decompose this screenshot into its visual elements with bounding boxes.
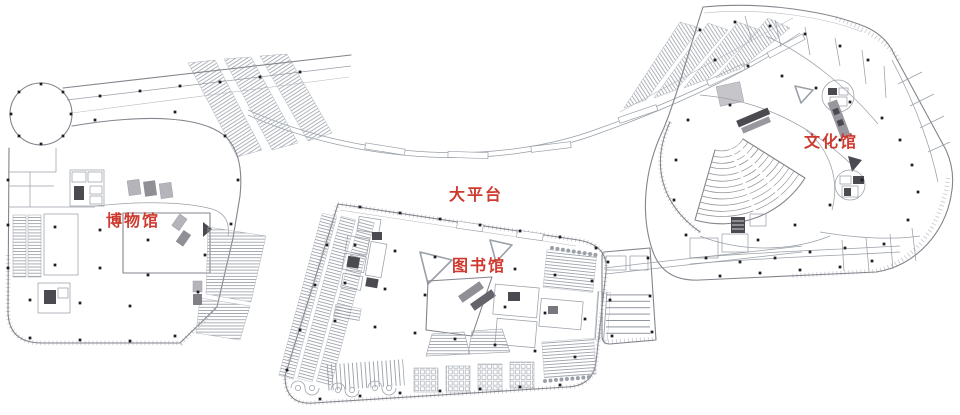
museum-library-stairs [193,227,266,340]
floor-plan-canvas [0,0,960,415]
culture-core-lower [835,170,865,200]
culture-rooms-bottom [690,228,920,271]
library-stacks-left [279,209,375,389]
library-label: 图书馆 [452,258,506,274]
culture-void-triangle [795,86,813,103]
culture-center-label: 文化馆 [804,134,858,150]
library-plan [279,204,611,403]
culture-grand-stairs [620,18,793,112]
culture-rooms-right [892,60,950,182]
library-atrium [426,277,496,336]
culture-center-plan [620,5,953,280]
library-reading-area [325,329,534,392]
auditorium [660,108,805,232]
museum-label: 博物馆 [106,213,160,229]
auditorium-seating [697,139,799,217]
floor-plan: 大平台 博物馆 图书馆 文化馆 [0,0,960,415]
museum-core-2 [38,283,70,313]
culture-core-top [822,80,854,139]
library-rooms-right [493,284,583,348]
library-stacks-right [542,248,611,381]
platform-label: 大平台 [449,187,503,203]
connector-wing [602,246,802,344]
museum-core [70,170,104,206]
museum-grand-stairs [188,54,332,157]
